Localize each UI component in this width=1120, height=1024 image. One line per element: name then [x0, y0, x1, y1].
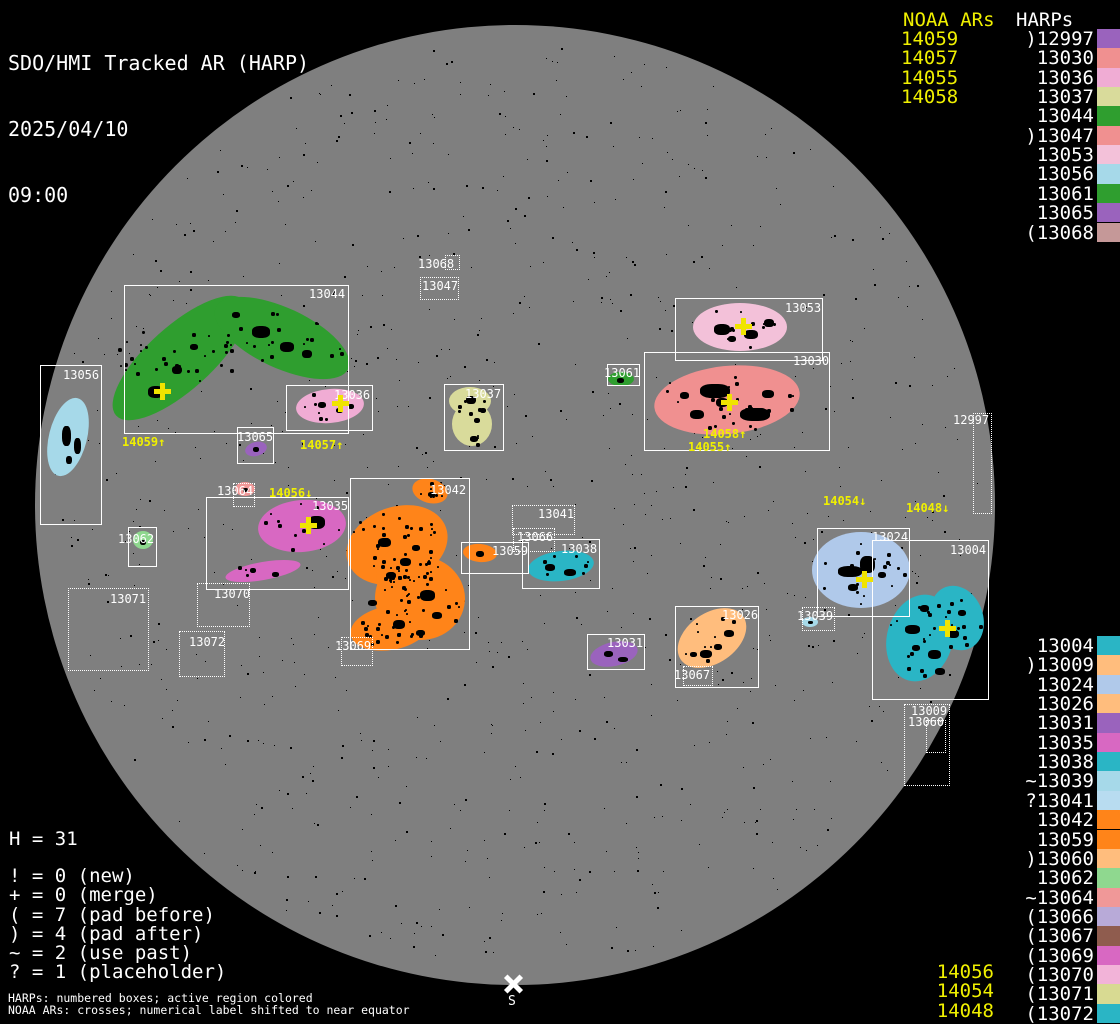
noise-speck	[133, 254, 134, 255]
noise-speck	[656, 491, 657, 492]
noise-speck	[662, 816, 663, 817]
noise-speck	[947, 376, 948, 377]
harp-box-13042	[350, 478, 470, 650]
noise-speck	[544, 623, 545, 624]
noise-speck	[547, 196, 548, 197]
noise-speck	[391, 329, 392, 330]
noise-speck	[589, 674, 591, 676]
noise-speck	[396, 359, 397, 360]
noise-speck	[594, 257, 595, 258]
noise-speck	[547, 135, 548, 136]
noise-speck	[702, 170, 703, 171]
noise-speck	[261, 807, 263, 809]
noise-speck	[775, 685, 776, 686]
harp-color-swatch	[1097, 694, 1120, 713]
noise-speck	[358, 330, 359, 331]
noise-speck	[71, 545, 73, 547]
noise-speck	[579, 730, 581, 732]
noise-speck	[776, 188, 777, 189]
harp-box-label-13056: 13056	[63, 369, 99, 381]
noise-speck	[155, 461, 156, 462]
noise-speck	[787, 593, 788, 594]
noise-speck	[217, 171, 219, 173]
noise-speck	[433, 143, 434, 144]
noise-speck	[355, 360, 357, 362]
harp-color-swatch	[1097, 184, 1120, 203]
noise-speck	[572, 242, 573, 243]
noise-speck	[805, 471, 806, 472]
noise-speck	[493, 952, 494, 953]
noise-speck	[616, 927, 617, 928]
noise-speck	[414, 933, 415, 934]
harp-box-label-13053: 13053	[785, 302, 821, 314]
noise-speck	[197, 678, 198, 679]
noise-speck	[644, 493, 645, 494]
noise-speck	[338, 136, 340, 138]
noise-speck	[726, 734, 727, 735]
noise-speck	[416, 922, 418, 924]
noise-speck	[488, 642, 489, 643]
noise-speck	[805, 597, 806, 598]
noise-speck	[657, 907, 659, 909]
noise-speck	[387, 348, 388, 349]
noise-speck	[469, 907, 470, 908]
harp-box-label-13004: 13004	[950, 544, 986, 556]
noise-speck	[308, 901, 309, 902]
noise-speck	[810, 738, 811, 739]
noise-speck	[651, 555, 652, 556]
noise-speck	[426, 758, 427, 759]
noise-speck	[848, 447, 849, 448]
noise-speck	[954, 368, 955, 369]
noise-speck	[685, 486, 687, 488]
noise-speck	[561, 894, 562, 895]
noise-speck	[247, 673, 249, 675]
noise-speck	[808, 645, 810, 647]
noise-speck	[370, 326, 372, 328]
noise-speck	[166, 689, 167, 690]
noise-speck	[862, 637, 863, 638]
noise-speck	[881, 762, 882, 763]
noise-speck	[286, 910, 287, 911]
noise-speck	[638, 858, 639, 859]
noise-speck	[879, 706, 880, 707]
noise-speck	[540, 595, 541, 596]
noise-speck	[932, 385, 933, 386]
noise-speck	[626, 257, 627, 258]
noise-speck	[485, 951, 487, 953]
title-block: SDO/HMI Tracked AR (HARP) 2025/04/10 09:…	[8, 8, 309, 250]
noise-speck	[436, 355, 438, 357]
noise-speck	[505, 116, 506, 117]
noise-speck	[575, 364, 576, 365]
noise-speck	[727, 721, 728, 722]
noise-speck	[855, 298, 857, 300]
noise-speck	[642, 163, 643, 164]
noise-speck	[387, 105, 388, 106]
noise-speck	[471, 267, 472, 268]
noise-speck	[755, 822, 756, 823]
noise-speck	[575, 504, 576, 505]
noise-speck	[623, 79, 624, 80]
noise-speck	[726, 521, 727, 522]
noise-speck	[74, 353, 75, 354]
noise-speck	[841, 363, 842, 364]
noise-speck	[287, 876, 289, 878]
noise-speck	[366, 363, 368, 365]
noise-speck	[317, 824, 319, 826]
noise-speck	[378, 777, 379, 778]
noise-speck	[515, 208, 517, 210]
noise-speck	[153, 641, 155, 643]
noise-speck	[332, 905, 333, 906]
noise-speck	[794, 595, 795, 596]
noise-speck	[383, 324, 385, 326]
noise-speck	[279, 157, 280, 158]
noise-speck	[594, 738, 596, 740]
noise-speck	[630, 294, 632, 296]
harp-color-swatch	[1097, 203, 1120, 222]
noise-speck	[204, 739, 206, 741]
noise-speck	[681, 788, 683, 790]
noise-speck	[649, 618, 651, 620]
noise-speck	[315, 241, 316, 242]
noise-speck	[902, 449, 903, 450]
noise-speck	[460, 82, 461, 83]
noise-speck	[558, 180, 559, 181]
noise-speck	[694, 168, 695, 169]
harp-box-label-13024: 13024	[872, 531, 908, 543]
noise-speck	[488, 95, 489, 96]
noise-speck	[264, 704, 265, 705]
noise-speck	[606, 721, 608, 723]
noise-speck	[693, 509, 695, 511]
noise-speck	[254, 814, 255, 815]
noise-speck	[528, 197, 529, 198]
harp-color-swatch	[1097, 675, 1120, 694]
harp-box-label-13037: 13037	[465, 388, 501, 400]
noise-speck	[177, 700, 178, 701]
noise-speck	[360, 733, 361, 734]
noise-speck	[136, 509, 137, 510]
noise-speck	[756, 833, 758, 835]
harp-box-label-13064: 13064	[217, 485, 253, 497]
noaa-ar-item: 14048	[894, 1002, 994, 1021]
noise-speck	[367, 467, 368, 468]
harp-box-label-13071: 13071	[110, 593, 146, 605]
noise-speck	[242, 870, 243, 871]
noise-speck	[439, 909, 440, 910]
noise-speck	[77, 539, 79, 541]
noise-speck	[603, 415, 604, 416]
noise-speck	[817, 845, 818, 846]
noise-speck	[497, 652, 498, 653]
noise-speck	[499, 113, 501, 115]
noise-speck	[574, 842, 575, 843]
noaa-ar-disk-label: 14048↓	[906, 502, 949, 514]
noise-speck	[793, 819, 794, 820]
noise-speck	[346, 690, 347, 691]
noaa-ar-item: 14058	[901, 88, 958, 107]
noise-speck	[193, 230, 195, 232]
noise-speck	[753, 868, 754, 869]
noise-speck	[389, 191, 391, 193]
noise-speck	[507, 220, 509, 222]
noise-speck	[601, 302, 602, 303]
noise-speck	[371, 814, 372, 815]
noise-speck	[660, 301, 661, 302]
noise-speck	[592, 391, 594, 393]
noise-speck	[561, 739, 562, 740]
noise-speck	[653, 946, 654, 947]
harp-list-item: ~13039	[954, 772, 1094, 791]
noise-speck	[707, 135, 708, 136]
noise-speck	[501, 920, 502, 921]
noise-speck	[258, 740, 259, 741]
noise-speck	[290, 97, 292, 99]
noise-speck	[390, 158, 391, 159]
noise-speck	[98, 338, 99, 339]
harp-color-swatch	[1097, 810, 1120, 829]
noaa-cross-icon	[856, 571, 873, 588]
noise-speck	[398, 80, 399, 81]
noaa-ar-disk-label: 14057↑	[300, 439, 343, 451]
noise-speck	[576, 617, 578, 619]
noise-speck	[140, 499, 141, 500]
noise-speck	[890, 417, 891, 418]
noise-speck	[188, 528, 189, 529]
noise-speck	[381, 271, 382, 272]
noise-speck	[447, 698, 449, 700]
noise-speck	[554, 871, 555, 872]
noise-speck	[467, 850, 468, 851]
noise-speck	[422, 454, 423, 455]
noise-speck	[519, 302, 521, 304]
noise-speck	[614, 56, 615, 57]
blob-speck	[120, 365, 122, 367]
noise-speck	[566, 419, 567, 420]
noise-speck	[111, 318, 112, 319]
noise-speck	[479, 330, 480, 331]
noise-speck	[524, 215, 526, 217]
noise-speck	[158, 623, 160, 625]
noise-speck	[354, 366, 355, 367]
noise-speck	[520, 777, 521, 778]
noise-speck	[352, 244, 354, 246]
noise-speck	[747, 586, 748, 587]
noise-speck	[490, 84, 491, 85]
noise-speck	[82, 361, 84, 363]
noise-speck	[669, 659, 671, 661]
noise-speck	[746, 456, 747, 457]
harp-list-item: 13044	[954, 107, 1094, 126]
noise-speck	[626, 762, 627, 763]
noise-speck	[371, 851, 372, 852]
noise-speck	[663, 871, 664, 872]
noise-speck	[737, 708, 738, 709]
noise-speck	[633, 613, 634, 614]
noise-speck	[278, 201, 279, 202]
noise-speck	[484, 752, 485, 753]
harp-color-swatch	[1097, 106, 1120, 125]
noise-speck	[545, 471, 546, 472]
harp-color-swatch	[1097, 126, 1120, 145]
noise-speck	[523, 683, 524, 684]
noaa-cross-icon	[332, 395, 349, 412]
noise-speck	[694, 745, 695, 746]
noise-speck	[635, 950, 636, 951]
noise-speck	[604, 808, 605, 809]
noise-speck	[869, 706, 870, 707]
noise-speck	[287, 185, 289, 187]
noise-speck	[864, 328, 865, 329]
noise-speck	[532, 436, 533, 437]
harp-color-swatch	[1097, 907, 1120, 926]
harp-box-label-13038: 13038	[561, 543, 597, 555]
noise-speck	[606, 276, 607, 277]
noise-speck	[544, 810, 545, 811]
noise-speck	[429, 397, 431, 399]
noise-speck	[291, 638, 292, 639]
noise-speck	[619, 403, 621, 405]
noise-speck	[856, 741, 857, 742]
noise-speck	[793, 152, 795, 154]
noise-speck	[636, 796, 638, 798]
noise-speck	[275, 462, 276, 463]
noise-speck	[223, 194, 224, 195]
noise-speck	[373, 740, 375, 742]
noise-speck	[408, 406, 409, 407]
noise-speck	[760, 809, 761, 810]
noise-speck	[830, 386, 831, 387]
noise-speck	[293, 644, 294, 645]
noise-speck	[225, 764, 226, 765]
noise-speck	[344, 276, 346, 278]
noise-speck	[711, 577, 712, 578]
noise-speck	[765, 134, 766, 135]
noise-speck	[874, 284, 876, 286]
noise-speck	[382, 295, 383, 296]
noise-speck	[241, 165, 243, 167]
noise-speck	[450, 376, 451, 377]
noise-speck	[915, 443, 916, 444]
noise-speck	[814, 809, 815, 810]
noise-speck	[516, 443, 517, 444]
noise-speck	[442, 934, 444, 936]
noise-speck	[398, 466, 399, 467]
noise-speck	[932, 520, 933, 521]
noise-speck	[621, 762, 622, 763]
noise-speck	[225, 231, 226, 232]
harp-box-label-13031: 13031	[607, 637, 643, 649]
noise-speck	[586, 136, 588, 138]
noise-speck	[319, 912, 321, 914]
noise-speck	[612, 588, 613, 589]
noise-speck	[334, 480, 335, 481]
noise-speck	[620, 310, 622, 312]
noise-speck	[465, 799, 467, 801]
harp-list-item: 13065	[954, 204, 1094, 223]
harp-list-item: 13030	[954, 49, 1094, 68]
noise-speck	[477, 334, 479, 336]
noise-speck	[614, 871, 615, 872]
noise-speck	[627, 338, 628, 339]
noise-speck	[828, 516, 829, 517]
noise-speck	[831, 818, 832, 819]
noise-speck	[531, 697, 532, 698]
noise-speck	[543, 262, 544, 263]
noise-speck	[769, 635, 770, 636]
noise-speck	[190, 271, 192, 273]
noise-speck	[638, 852, 639, 853]
noise-speck	[857, 653, 858, 654]
noise-speck	[850, 340, 851, 341]
noise-speck	[546, 58, 547, 59]
noise-speck	[460, 94, 461, 95]
harp-list-item: (13067	[954, 927, 1094, 946]
noise-speck	[259, 656, 260, 657]
noise-speck	[342, 745, 344, 747]
noise-speck	[612, 303, 613, 304]
noise-speck	[803, 690, 804, 691]
noise-speck	[351, 358, 352, 359]
noaa-cross-icon	[721, 394, 738, 411]
noise-speck	[431, 856, 432, 857]
noise-speck	[537, 914, 538, 915]
noise-speck	[272, 191, 273, 192]
harp-box-label-13062: 13062	[118, 533, 154, 545]
harp-color-swatch	[1097, 223, 1120, 242]
noise-speck	[190, 223, 191, 224]
noise-speck	[399, 380, 400, 381]
harp-color-swatch	[1097, 145, 1120, 164]
noise-speck	[852, 341, 853, 342]
noise-speck	[850, 361, 851, 362]
noise-speck	[295, 686, 296, 687]
harp-list-item: 13056	[954, 165, 1094, 184]
blob-speck	[118, 348, 122, 352]
noise-speck	[759, 466, 761, 468]
harp-box-label-12997: 12997	[953, 414, 989, 426]
noise-speck	[852, 397, 854, 399]
south-pole-x-icon	[503, 974, 523, 994]
noise-speck	[660, 784, 662, 786]
noise-speck	[351, 112, 353, 114]
harp-box-label-13069: 13069	[335, 640, 371, 652]
noise-speck	[609, 272, 610, 273]
noise-speck	[236, 210, 238, 212]
noise-speck	[665, 191, 667, 193]
noise-speck	[792, 781, 793, 782]
noise-speck	[314, 634, 315, 635]
noise-speck	[632, 261, 634, 263]
noise-speck	[263, 672, 264, 673]
noise-speck	[560, 932, 561, 933]
noise-speck	[161, 679, 162, 680]
noise-speck	[538, 343, 540, 345]
noise-speck	[685, 474, 686, 475]
noise-speck	[434, 725, 435, 726]
noise-speck	[560, 114, 561, 115]
noise-speck	[573, 132, 575, 134]
noise-speck	[441, 349, 442, 350]
noise-speck	[504, 91, 505, 92]
noise-speck	[335, 677, 336, 678]
noise-speck	[561, 48, 563, 50]
noise-speck	[510, 779, 511, 780]
noise-speck	[625, 464, 626, 465]
noise-speck	[395, 840, 396, 841]
